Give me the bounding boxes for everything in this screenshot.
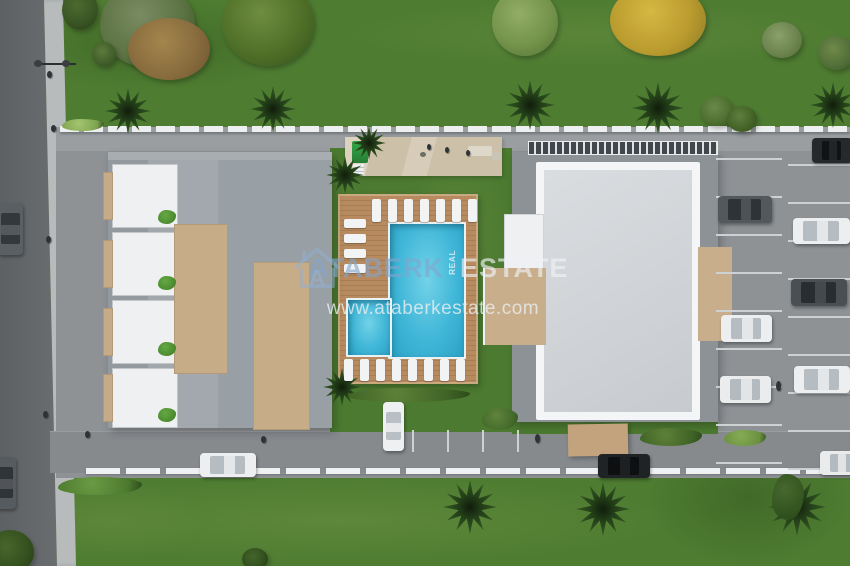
hedge-row — [58, 477, 142, 495]
brand-text-real: REAL — [447, 261, 457, 275]
sun-lounger — [344, 234, 366, 243]
pedestrian — [43, 411, 48, 418]
car — [598, 454, 650, 478]
sun-lounger — [388, 199, 397, 222]
pedestrian — [445, 147, 449, 153]
small-tree — [92, 42, 116, 66]
palm-tree — [352, 126, 386, 160]
car — [721, 315, 772, 342]
bush — [482, 408, 518, 430]
palm-tree — [576, 482, 630, 536]
site-plan-render: A ATABERK REAL ESTATE www.ataberkestate.… — [0, 0, 850, 566]
logo-letter: A — [309, 265, 325, 290]
car — [718, 196, 772, 223]
cyclist — [535, 434, 540, 443]
tree — [222, 0, 314, 66]
sun-lounger — [392, 359, 401, 381]
sun-lounger — [420, 199, 429, 222]
pedestrian — [261, 436, 266, 443]
planter — [158, 210, 176, 224]
pedestrian — [466, 150, 470, 156]
brand-text-estate: ESTATE — [460, 253, 569, 284]
palm-tree — [105, 88, 151, 134]
hedge-row — [640, 428, 702, 446]
sun-lounger — [360, 359, 369, 381]
car — [200, 453, 256, 477]
car — [791, 279, 847, 306]
planter — [158, 408, 176, 422]
sun-lounger — [376, 359, 385, 381]
sun-lounger — [468, 199, 477, 222]
car — [0, 457, 16, 509]
pedestrian — [51, 125, 56, 132]
planter — [158, 276, 176, 290]
small-tree — [62, 0, 98, 30]
pedestrian — [427, 144, 431, 150]
car — [383, 402, 404, 451]
car — [794, 366, 850, 393]
brand-house-icon: A — [293, 241, 341, 293]
sun-lounger — [424, 359, 433, 381]
car — [820, 451, 850, 475]
palm-tree — [632, 82, 684, 134]
planter — [158, 342, 176, 356]
palm-tree — [505, 80, 555, 130]
palm-tree — [250, 86, 296, 132]
sun-lounger — [436, 199, 445, 222]
sun-lounger — [408, 359, 417, 381]
autumn-tree — [128, 18, 210, 80]
bush — [818, 36, 850, 70]
flower-bed — [62, 119, 104, 131]
website-url: www.ataberkestate.com — [293, 298, 573, 320]
yellow-tree — [610, 0, 706, 56]
bush — [242, 548, 268, 566]
tree — [492, 0, 558, 56]
palm-tree — [323, 368, 361, 406]
pedestrian — [46, 236, 51, 243]
tree — [0, 530, 34, 566]
hedge-row — [348, 388, 470, 402]
bush — [727, 106, 757, 132]
brand-row: A ATABERK REAL ESTATE — [293, 243, 573, 293]
pedestrian — [85, 431, 90, 438]
sun-lounger — [452, 199, 461, 222]
scooter — [776, 381, 781, 391]
sun-lounger — [344, 359, 353, 381]
sun-lounger — [404, 199, 413, 222]
sun-lounger — [440, 359, 449, 381]
watermark: A ATABERK REAL ESTATE www.ataberkestate.… — [293, 243, 573, 320]
car — [793, 218, 850, 244]
palm-tree — [326, 156, 364, 194]
car — [0, 203, 23, 255]
sun-lounger — [344, 219, 366, 228]
palm-tree — [810, 82, 850, 128]
bush — [762, 22, 802, 58]
pedestrian — [47, 71, 52, 78]
car — [720, 376, 771, 403]
sun-lounger — [456, 359, 465, 381]
palm-tree — [443, 480, 497, 534]
car — [812, 138, 850, 163]
sun-lounger — [372, 199, 381, 222]
bush — [724, 430, 766, 446]
